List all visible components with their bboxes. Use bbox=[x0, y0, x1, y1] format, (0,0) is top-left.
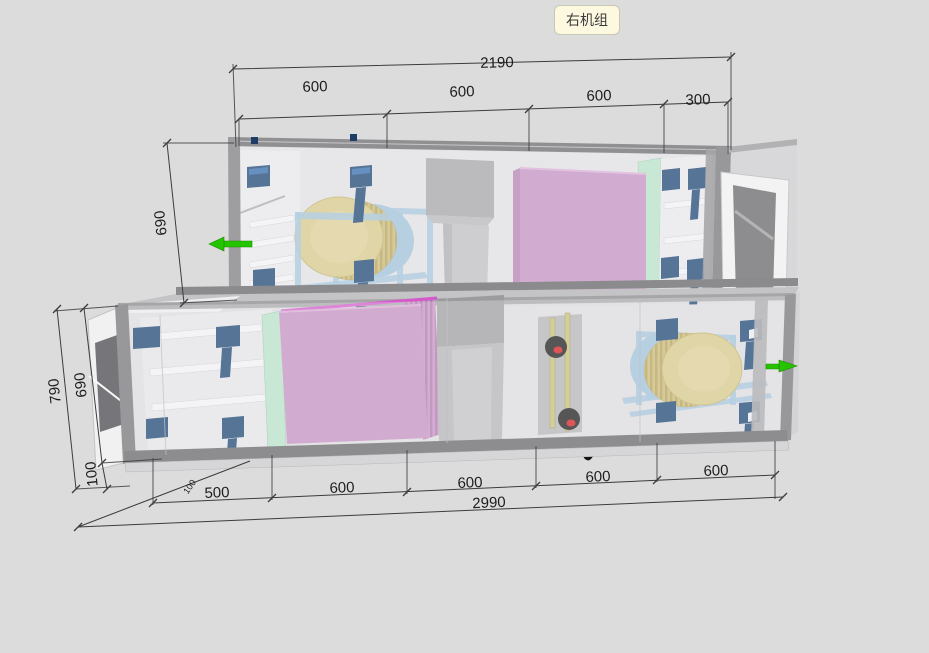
dim-lower-inner-height: 690 bbox=[72, 372, 90, 398]
unit-label-badge[interactable]: 右机组 bbox=[554, 5, 620, 35]
dim-top-seg-1: 600 bbox=[302, 79, 328, 95]
dim-upper-height: 690 bbox=[152, 210, 170, 236]
dim-lower-base-height: 100 bbox=[83, 461, 101, 487]
dim-bottom-seg-4: 600 bbox=[585, 469, 611, 485]
dim-top-seg-4: 300 bbox=[685, 92, 711, 108]
dim-top-seg-2: 600 bbox=[449, 84, 475, 100]
lower-unit bbox=[88, 278, 800, 472]
dim-lower-overall-height: 790 bbox=[46, 378, 64, 404]
dim-top-seg-3: 600 bbox=[586, 88, 612, 104]
cad-viewport: 2190 600 600 600 300 690 790 690 100 500… bbox=[0, 0, 929, 653]
dim-bottom-seg-2: 600 bbox=[329, 480, 355, 496]
dim-bottom-seg-5: 600 bbox=[703, 463, 729, 479]
dim-bottom-seg-1: 500 bbox=[204, 485, 230, 501]
dim-top-total: 2190 bbox=[480, 55, 514, 71]
dim-bottom-total: 2990 bbox=[472, 495, 506, 511]
dim-bottom-seg-3: 600 bbox=[457, 475, 483, 491]
